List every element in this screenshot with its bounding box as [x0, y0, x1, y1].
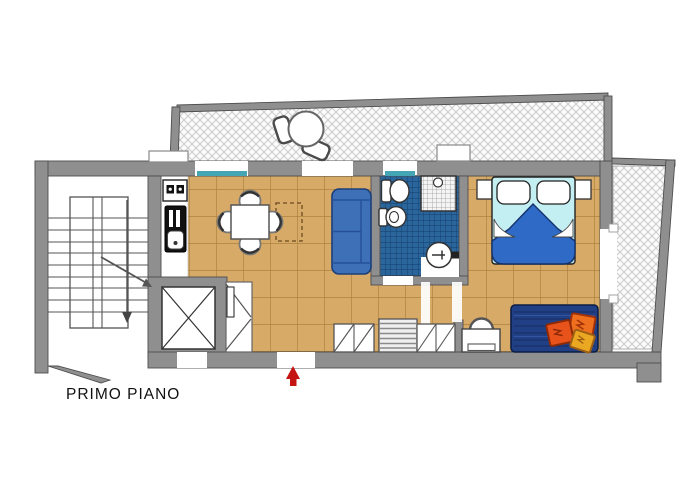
bathroom-door-opening [383, 276, 413, 285]
elevator-lobby-opening [177, 352, 207, 368]
entrance-door [226, 282, 252, 352]
bed-pillow-right [537, 181, 570, 204]
entrance-opening [277, 352, 315, 368]
kitchen-window-sill [197, 171, 247, 176]
window-jamb-bottom [609, 295, 618, 303]
sink-drainer-bar-1 [169, 210, 173, 227]
bidet [379, 207, 406, 228]
bedroom-window-opening [600, 229, 617, 299]
stair-stringers [93, 197, 102, 328]
washstand-arch [470, 319, 493, 331]
nightstand-right [575, 180, 591, 199]
floor-plan-drawing [0, 0, 700, 500]
bottom-wall-foot [637, 363, 661, 382]
terrace-ledge-left [149, 151, 188, 162]
sink-drain-dot [174, 241, 178, 245]
dining-table [231, 205, 269, 239]
staircase [48, 197, 152, 328]
elevator [162, 287, 215, 349]
stair-rail-stub [48, 366, 110, 383]
terrace-round-table [289, 112, 324, 147]
terrace-ledge-right [437, 145, 470, 161]
bidet-inner [390, 212, 399, 223]
radiator [379, 319, 417, 352]
washbasin-tap [451, 252, 459, 259]
shower-drain [434, 178, 443, 187]
bottom-wall [148, 352, 661, 368]
hall-door-strip-2 [452, 282, 462, 322]
hall-door-strip-1 [421, 282, 430, 326]
stair-well-outline [70, 197, 128, 328]
sink-basin [168, 231, 184, 249]
bathroom-window-sill [385, 171, 415, 176]
stair-down-arrowhead-icon [122, 312, 132, 323]
bathroom-left-wall [371, 176, 380, 281]
window-jamb-top [609, 224, 618, 232]
stair-break-line [101, 257, 150, 285]
bed-pillow-left [497, 181, 530, 204]
floor-label: PRIMO PIANO [66, 386, 226, 404]
double-bed [492, 177, 575, 264]
kitchen-side-wall [148, 176, 161, 278]
entrance-arrow-icon [286, 366, 300, 386]
sink-drainer-bar-2 [176, 210, 180, 227]
stair-steps [48, 218, 148, 312]
toilet [382, 180, 410, 203]
sofa [332, 189, 371, 274]
stove-burner-dot-2 [179, 188, 182, 191]
kitchen [163, 180, 187, 252]
nightstand-left [477, 180, 492, 199]
terrace-door-opening [302, 161, 353, 176]
cushion-red [546, 320, 574, 347]
floor-plan-canvas: PRIMO PIANO [0, 0, 700, 500]
stove-burner-dot-1 [169, 188, 172, 191]
terrace-right-edge [604, 96, 612, 161]
wardrobe-2 [417, 324, 455, 352]
stair-left-wall [35, 161, 48, 373]
washstand-drawer [468, 344, 495, 351]
entrance-door-leaf [227, 287, 234, 317]
wardrobe-1 [334, 324, 374, 352]
bathroom-right-wall [459, 176, 468, 281]
toilet-bowl [390, 180, 409, 203]
